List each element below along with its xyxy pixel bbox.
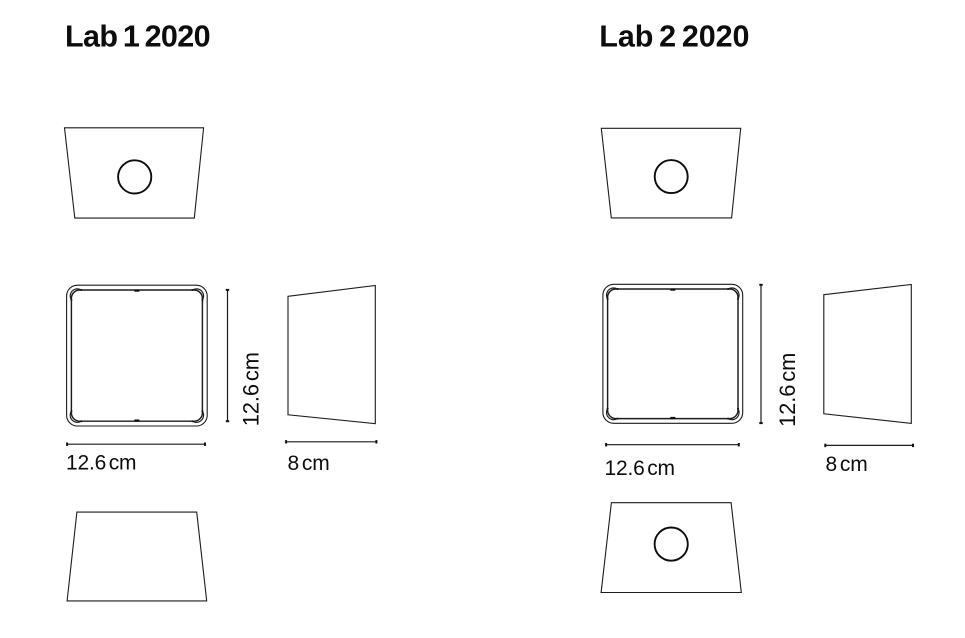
svg-text:8 cm: 8 cm	[826, 453, 868, 476]
svg-text:12.6 cm: 12.6 cm	[775, 353, 800, 427]
svg-text:12.6 cm: 12.6 cm	[66, 452, 136, 475]
svg-text:12.6 cm: 12.6 cm	[239, 352, 264, 426]
svg-text:Lab 1 2020: Lab 1 2020	[65, 20, 210, 54]
svg-text:Lab 2 2020: Lab 2 2020	[599, 20, 749, 54]
svg-text:8 cm: 8 cm	[288, 452, 330, 475]
svg-text:12.6 cm: 12.6 cm	[605, 457, 675, 480]
